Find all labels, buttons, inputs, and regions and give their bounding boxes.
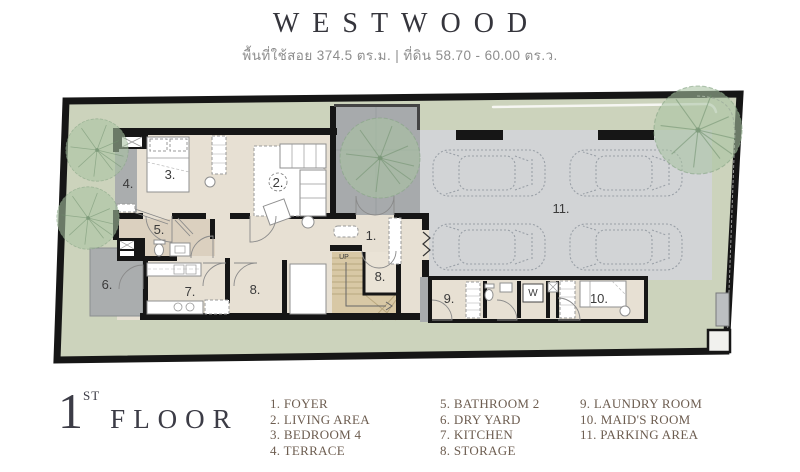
legend-item: 4. TERRACE <box>270 443 370 459</box>
tree-icon <box>66 119 128 181</box>
legend-column-2: 5. BATHROOM 2 6. DRY YARD 7. KITCHEN 8. … <box>440 396 540 458</box>
legend-item: 10. MAID'S ROOM <box>580 412 702 428</box>
room-label-bedroom4: 3. <box>165 167 176 182</box>
room-label-laundry: 9. <box>444 291 455 306</box>
tree-icon <box>340 118 420 198</box>
washer-label: W <box>528 288 538 299</box>
tree-icon <box>57 187 119 249</box>
room-label-dry-yard: 6. <box>102 277 113 292</box>
stairs-up-label: UP <box>339 254 349 261</box>
legend-item: 1. FOYER <box>270 396 370 412</box>
floor-ordinal: ST <box>83 388 100 403</box>
room-label-living: 2. <box>273 175 284 190</box>
legend-item: 6. DRY YARD <box>440 412 540 428</box>
floor-number: 1 <box>58 383 83 439</box>
tree-icon <box>654 86 742 174</box>
legend-item: 11. PARKING AREA <box>580 427 702 443</box>
legend-item: 8. STORAGE <box>440 443 540 459</box>
room-label-foyer: 1. <box>366 228 377 243</box>
legend-item: 7. KITCHEN <box>440 427 540 443</box>
legend-column-3: 9. LAUNDRY ROOM 10. MAID'S ROOM 11. PARK… <box>580 396 702 443</box>
room-label-bathroom2: 5. <box>154 222 165 237</box>
terrace-bench <box>117 204 135 212</box>
legend-item: 9. LAUNDRY ROOM <box>580 396 702 412</box>
refrigerator <box>205 300 229 314</box>
legend-item: 3. BEDROOM 4 <box>270 427 370 443</box>
legend-item: 2. LIVING AREA <box>270 412 370 428</box>
room-label-parking: 11. <box>552 201 569 216</box>
legend-column-1: 1. FOYER 2. LIVING AREA 3. BEDROOM 4 4. … <box>270 396 370 458</box>
living-furniture <box>254 144 326 228</box>
room-label-terrace: 4. <box>123 176 134 191</box>
room-label-maid: 10. <box>590 291 608 306</box>
legend-item: 5. BATHROOM 2 <box>440 396 540 412</box>
staircase <box>332 252 396 320</box>
room-label-kitchen: 7. <box>185 284 196 299</box>
floor-word: FLOOR <box>110 404 239 434</box>
room-label-storage: 8. <box>250 282 261 297</box>
room-label-storage-stair: 8. <box>375 269 386 284</box>
bedroom4-furniture <box>147 136 226 192</box>
wardrobe <box>212 136 226 174</box>
bench <box>334 226 358 237</box>
page: WESTWOOD พื้นที่ใช้สอย 374.5 ตร.ม. | ที่… <box>0 0 800 472</box>
storage-shelf <box>290 264 326 314</box>
floor-label: 1STFLOOR <box>58 386 239 436</box>
